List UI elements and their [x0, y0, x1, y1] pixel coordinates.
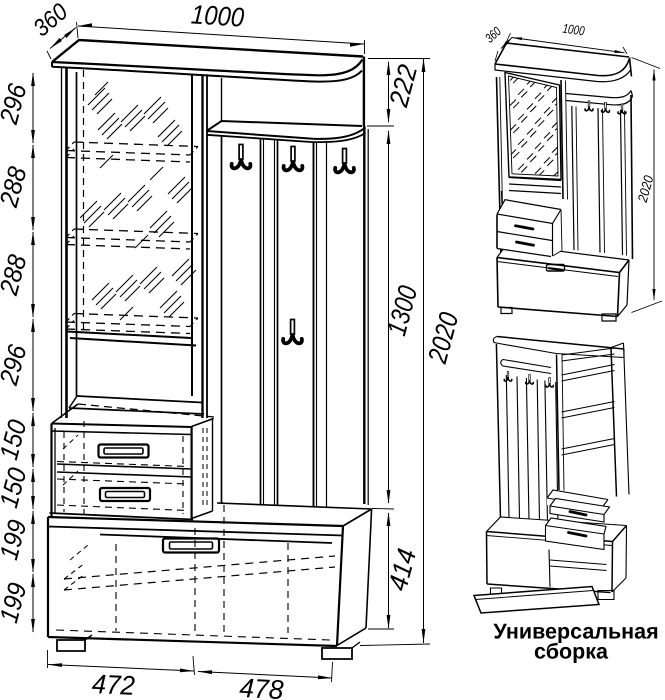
svg-text:1000: 1000 — [562, 21, 586, 39]
svg-text:сборка: сборка — [534, 640, 609, 664]
svg-text:478: 478 — [239, 673, 284, 700]
svg-text:472: 472 — [91, 669, 135, 700]
svg-text:1000: 1000 — [190, 0, 245, 33]
